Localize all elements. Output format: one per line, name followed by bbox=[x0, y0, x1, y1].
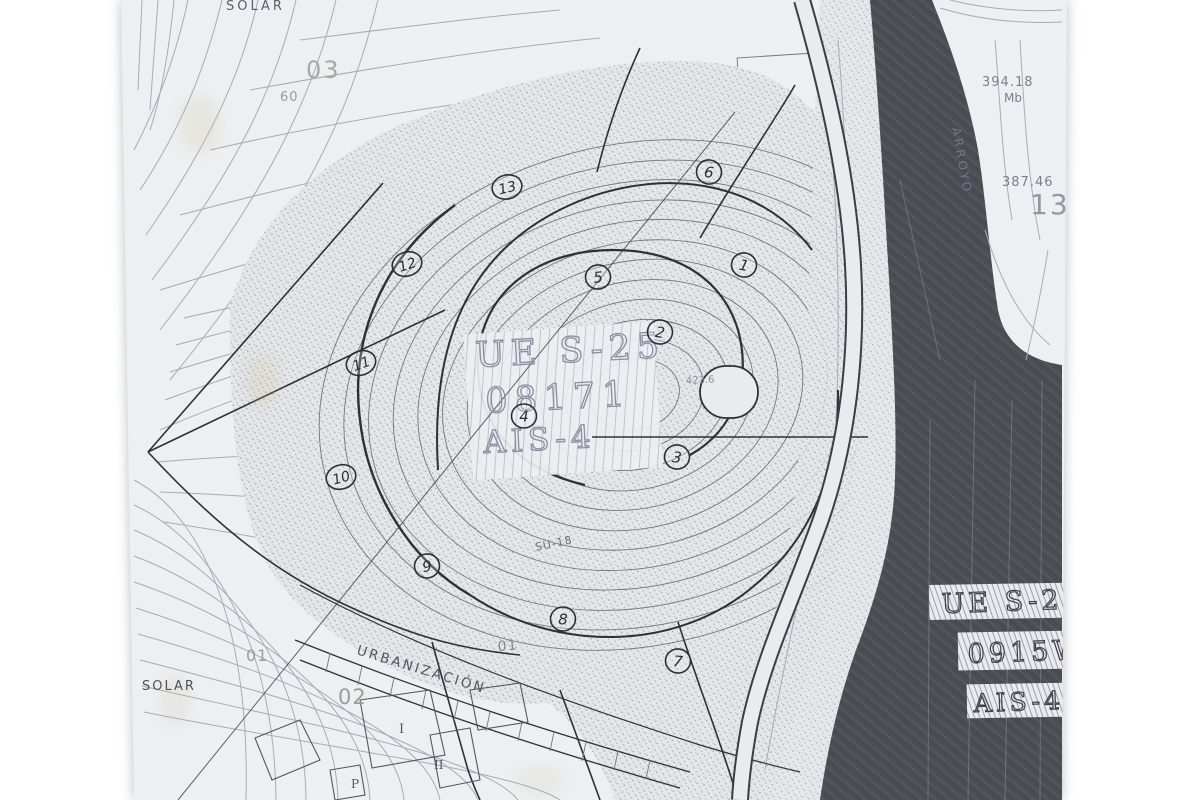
map-label-ref-60: 60 bbox=[280, 90, 299, 105]
map-label-block-i: I bbox=[399, 722, 404, 737]
map-label-box-ue-s-2: UE S-2 bbox=[941, 585, 1063, 620]
map-label-block-p: P bbox=[351, 777, 359, 791]
map-label-elev-423: 423.6 bbox=[686, 375, 715, 387]
parcel-number-text: 3 bbox=[671, 448, 682, 467]
parcel-number-4: 4 bbox=[512, 404, 537, 428]
map-label-box-ais-4: AIS-4 bbox=[972, 686, 1064, 718]
map-label-ref-13: 13 bbox=[1030, 188, 1070, 221]
map-label-box-0915w: 0915W bbox=[967, 635, 1084, 670]
page-background: SOLAR0360394.18Mb387.4613ARROYOSU-18423.… bbox=[0, 0, 1200, 800]
map-label-center-08171: 08171 bbox=[484, 374, 632, 422]
map-photo: SOLAR0360394.18Mb387.4613ARROYOSU-18423.… bbox=[0, 0, 1200, 800]
map-label-ref-03: 03 bbox=[306, 56, 341, 84]
parcel-number-8: 8 bbox=[551, 607, 576, 631]
map-label-ref-01b: 01 bbox=[497, 638, 518, 655]
map-label-ref-01a: 01 bbox=[246, 646, 268, 665]
map-label-center-ais-4: AIS-4 bbox=[482, 419, 597, 461]
cul-de-sac bbox=[700, 366, 758, 418]
map-label-elev-mb: Mb bbox=[1004, 91, 1022, 105]
map-label-solar-left: SOLAR bbox=[142, 679, 196, 694]
map-label-ref-02: 02 bbox=[338, 685, 367, 709]
map-label-elev-394: 394.18 bbox=[982, 75, 1034, 90]
parcel-number-text: 8 bbox=[558, 611, 568, 629]
parcel-number-text: 5 bbox=[592, 268, 603, 287]
parcel-number-text: 4 bbox=[519, 408, 529, 426]
map-label-block-ii: II bbox=[434, 758, 444, 772]
map-label-solar-top: SOLAR bbox=[226, 0, 285, 14]
